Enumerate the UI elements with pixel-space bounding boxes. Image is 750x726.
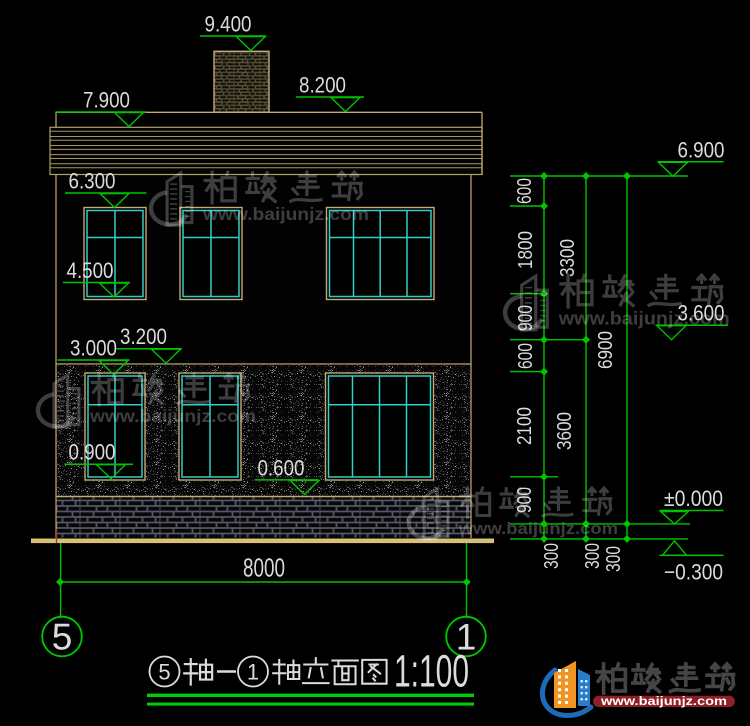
svg-text:www.baijunjz.com: www.baijunjz.com (600, 696, 727, 708)
svg-text:9.400: 9.400 (205, 12, 252, 37)
svg-text:8000: 8000 (243, 553, 285, 583)
svg-text:www.baijunjz.com: www.baijunjz.com (89, 406, 256, 426)
svg-text:300: 300 (541, 543, 563, 569)
svg-text:3.200: 3.200 (120, 324, 167, 349)
svg-text:3300: 3300 (557, 239, 579, 277)
svg-text:3600: 3600 (554, 412, 576, 450)
svg-text:1800: 1800 (515, 231, 537, 269)
svg-text:7.900: 7.900 (83, 88, 130, 113)
svg-text:±0.000: ±0.000 (664, 486, 723, 511)
svg-text:www.baijunjz.com: www.baijunjz.com (558, 309, 730, 329)
svg-text:6.900: 6.900 (678, 137, 725, 162)
svg-text:5: 5 (158, 660, 170, 685)
svg-text:www.baijunjz.com: www.baijunjz.com (202, 204, 369, 224)
svg-text:300: 300 (603, 546, 625, 572)
svg-text:5: 5 (52, 617, 73, 658)
svg-text:4.500: 4.500 (67, 258, 114, 283)
svg-text:6.300: 6.300 (69, 169, 116, 194)
svg-text:1: 1 (247, 660, 259, 685)
svg-text:600: 600 (515, 343, 537, 369)
svg-text:−0.300: −0.300 (664, 560, 723, 585)
svg-text:1:100: 1:100 (394, 646, 469, 697)
svg-text:0.600: 0.600 (258, 455, 305, 480)
svg-text:600: 600 (514, 178, 536, 204)
svg-text:6900: 6900 (595, 331, 617, 369)
svg-text:3.000: 3.000 (70, 336, 117, 361)
svg-text:2100: 2100 (514, 407, 536, 445)
svg-text:8.200: 8.200 (299, 73, 346, 98)
svg-text:0.900: 0.900 (69, 440, 116, 465)
svg-text:www.baijunjz.com: www.baijunjz.com (458, 519, 618, 538)
svg-text:300: 300 (582, 543, 604, 569)
